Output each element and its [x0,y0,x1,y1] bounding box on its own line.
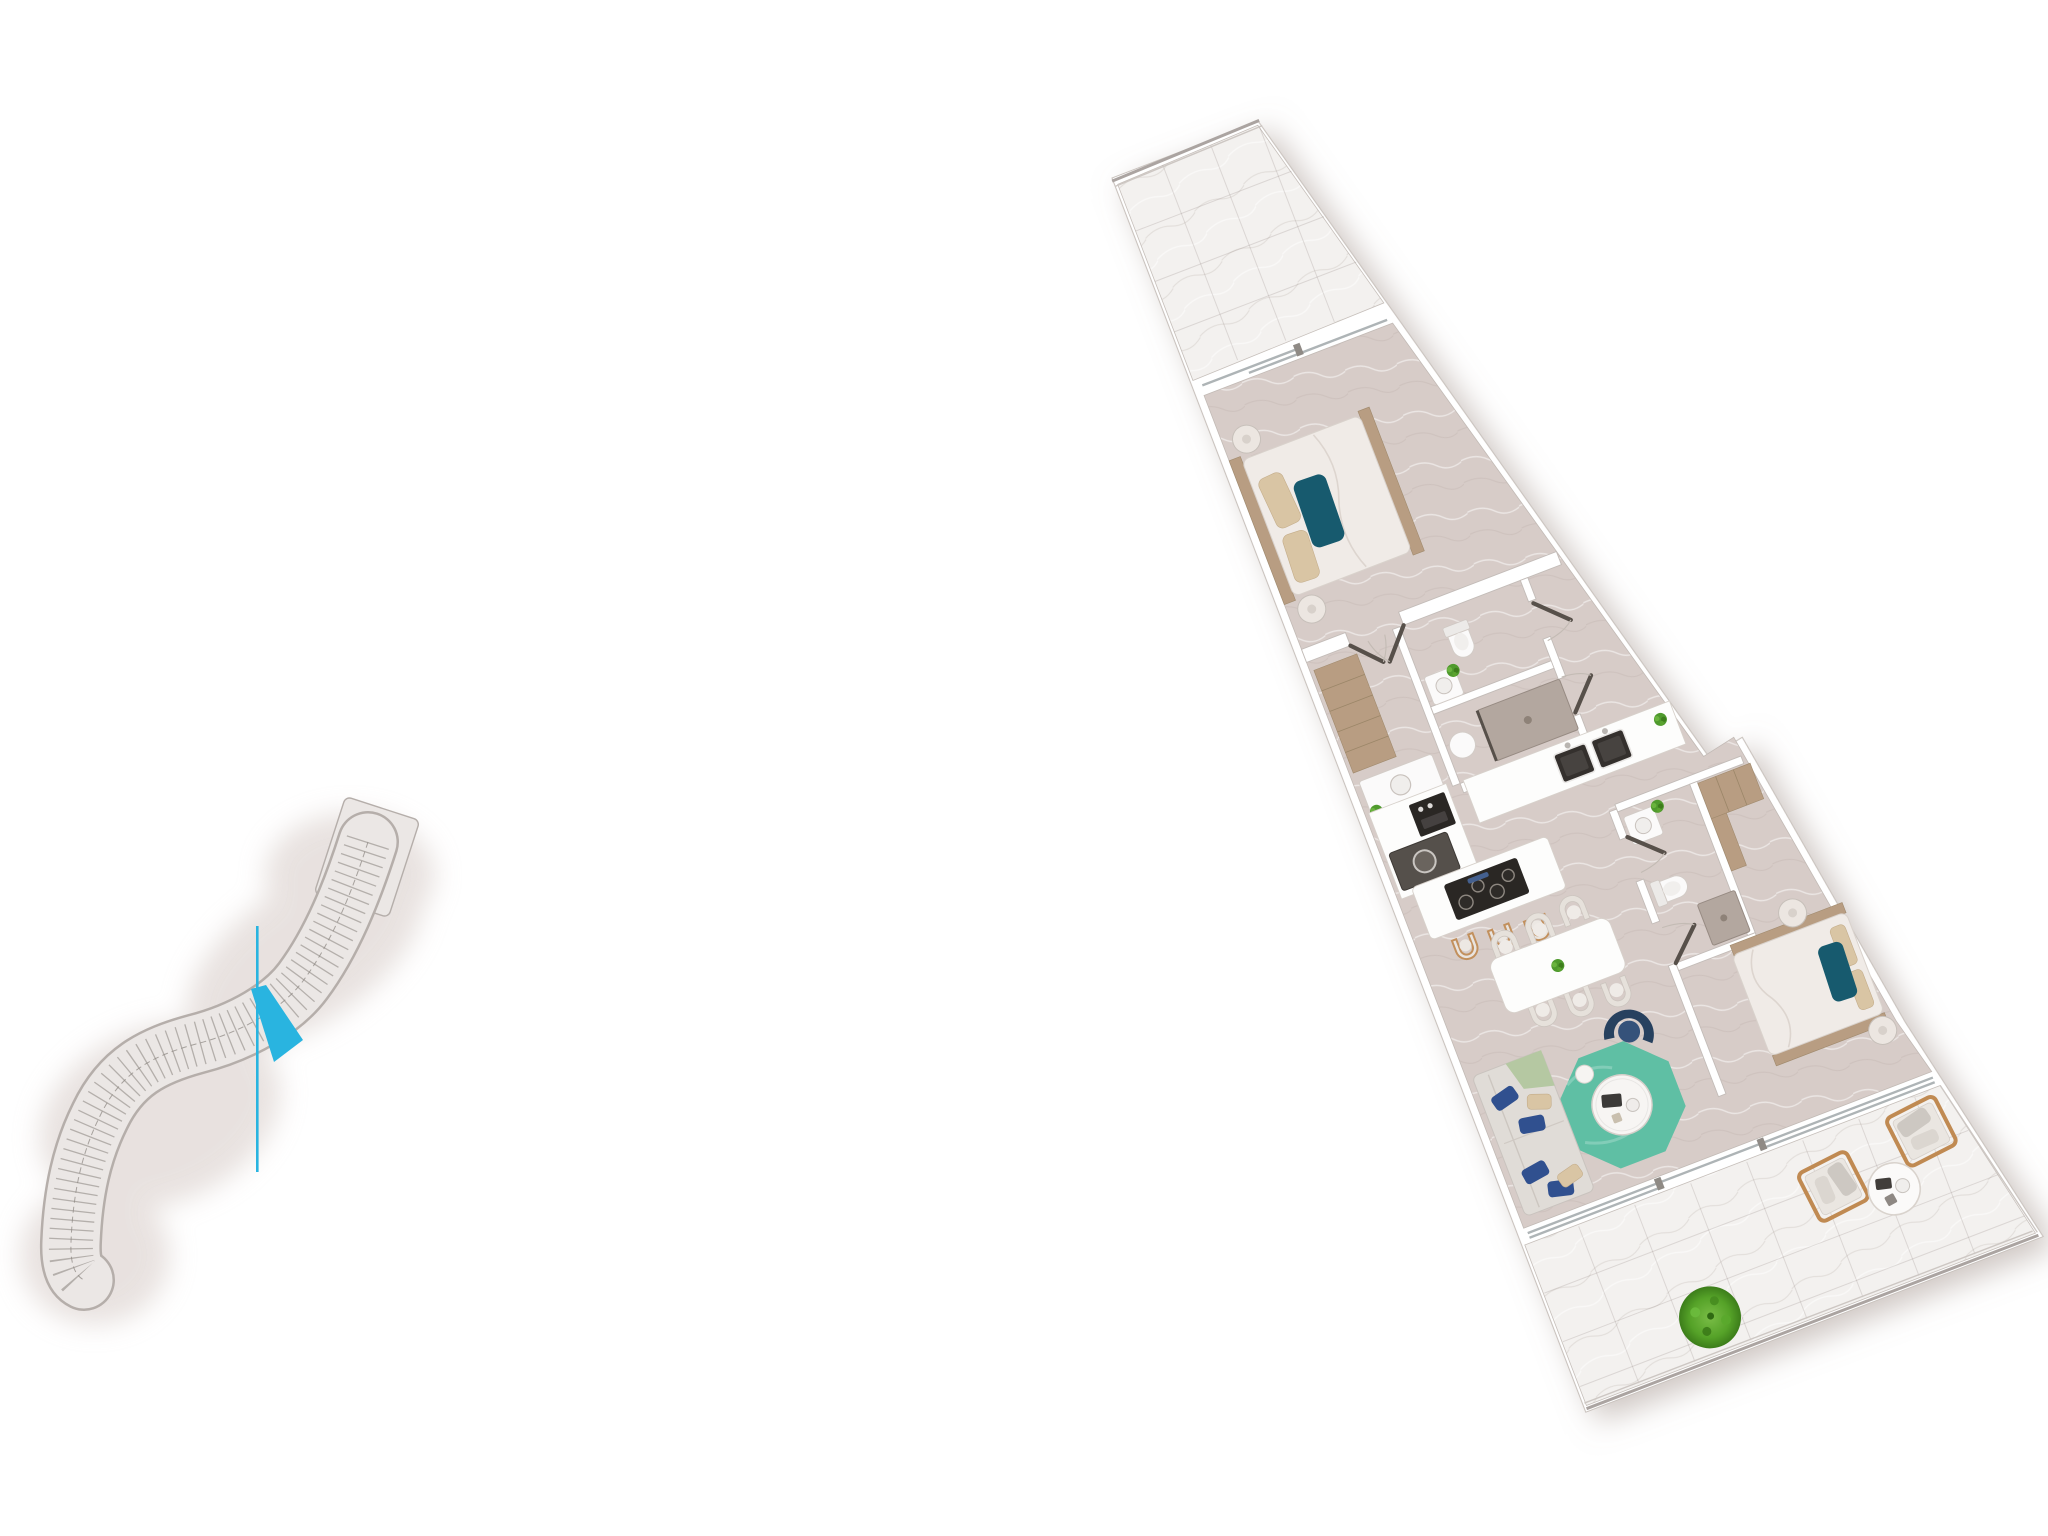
floor-plan-svg [0,0,2048,1536]
floor-plan-canvas[interactable] [0,0,2048,1536]
keyplan-locator-line [256,926,259,1172]
site-key-plan [11,796,455,1325]
apartment-plan [1111,1,2044,1412]
